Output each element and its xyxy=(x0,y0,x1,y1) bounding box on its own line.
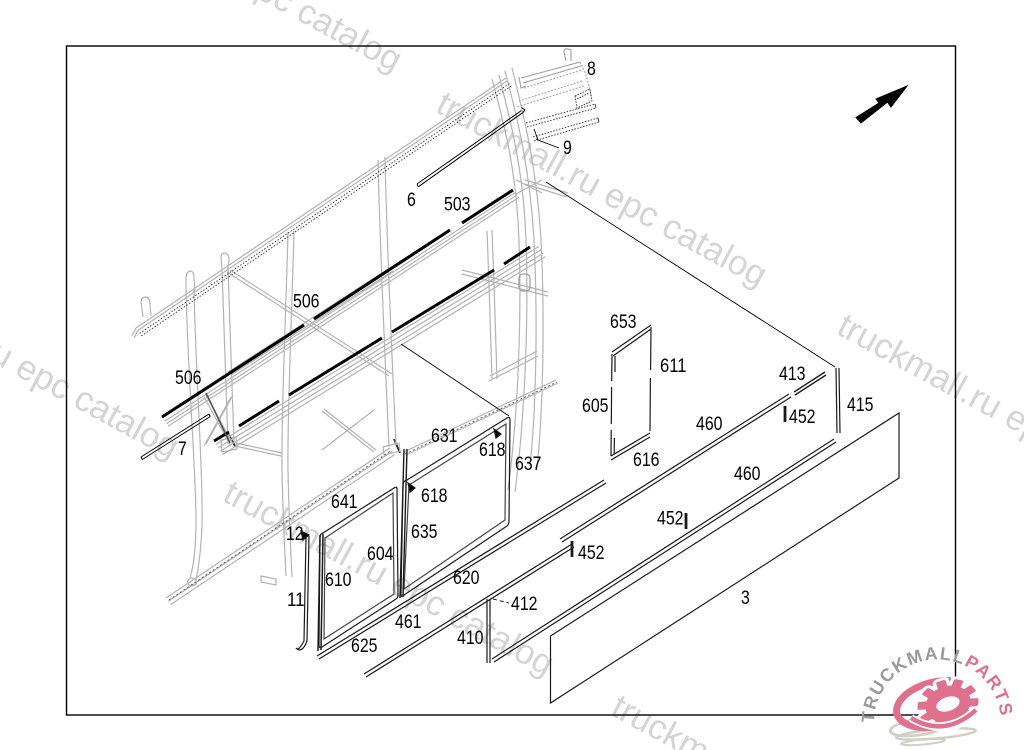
svg-text:9: 9 xyxy=(563,138,572,159)
svg-text:452: 452 xyxy=(789,407,816,428)
svg-text:11: 11 xyxy=(287,590,305,611)
svg-text:506: 506 xyxy=(293,292,320,313)
svg-text:8: 8 xyxy=(587,59,596,80)
svg-text:637: 637 xyxy=(515,454,542,475)
svg-text:7: 7 xyxy=(178,439,187,460)
svg-text:truckmall.ru epc catalog: truckmall.ru epc catalog xyxy=(0,256,186,467)
svg-text:605: 605 xyxy=(582,396,609,417)
svg-text:635: 635 xyxy=(411,522,438,543)
svg-text:460: 460 xyxy=(734,464,761,485)
svg-text:412: 412 xyxy=(511,594,538,615)
svg-text:631: 631 xyxy=(431,426,458,447)
svg-text:618: 618 xyxy=(421,486,448,507)
svg-text:410: 410 xyxy=(457,628,484,649)
svg-text:611: 611 xyxy=(660,356,687,377)
svg-text:452: 452 xyxy=(657,509,684,530)
svg-text:604: 604 xyxy=(367,544,394,565)
svg-text:610: 610 xyxy=(325,570,352,591)
svg-text:641: 641 xyxy=(331,492,358,513)
svg-text:452: 452 xyxy=(578,543,605,564)
svg-text:620: 620 xyxy=(453,568,480,589)
svg-text:truckmall.ru epc catalog: truckmall.ru epc catalog xyxy=(65,0,408,79)
svg-text:460: 460 xyxy=(696,414,723,435)
svg-text:6: 6 xyxy=(407,190,416,211)
svg-text:415: 415 xyxy=(847,395,874,416)
svg-text:506: 506 xyxy=(175,368,202,389)
svg-text:461: 461 xyxy=(395,612,422,633)
svg-text:truckmall.ru epc catalog: truckmall.ru epc catalog xyxy=(430,84,773,295)
svg-text:12: 12 xyxy=(286,524,304,545)
svg-text:653: 653 xyxy=(610,312,637,333)
svg-text:503: 503 xyxy=(444,195,471,216)
svg-text:413: 413 xyxy=(779,364,806,385)
svg-text:618: 618 xyxy=(479,440,506,461)
svg-text:616: 616 xyxy=(633,450,660,471)
svg-text:3: 3 xyxy=(741,588,750,609)
svg-text:625: 625 xyxy=(351,636,378,657)
